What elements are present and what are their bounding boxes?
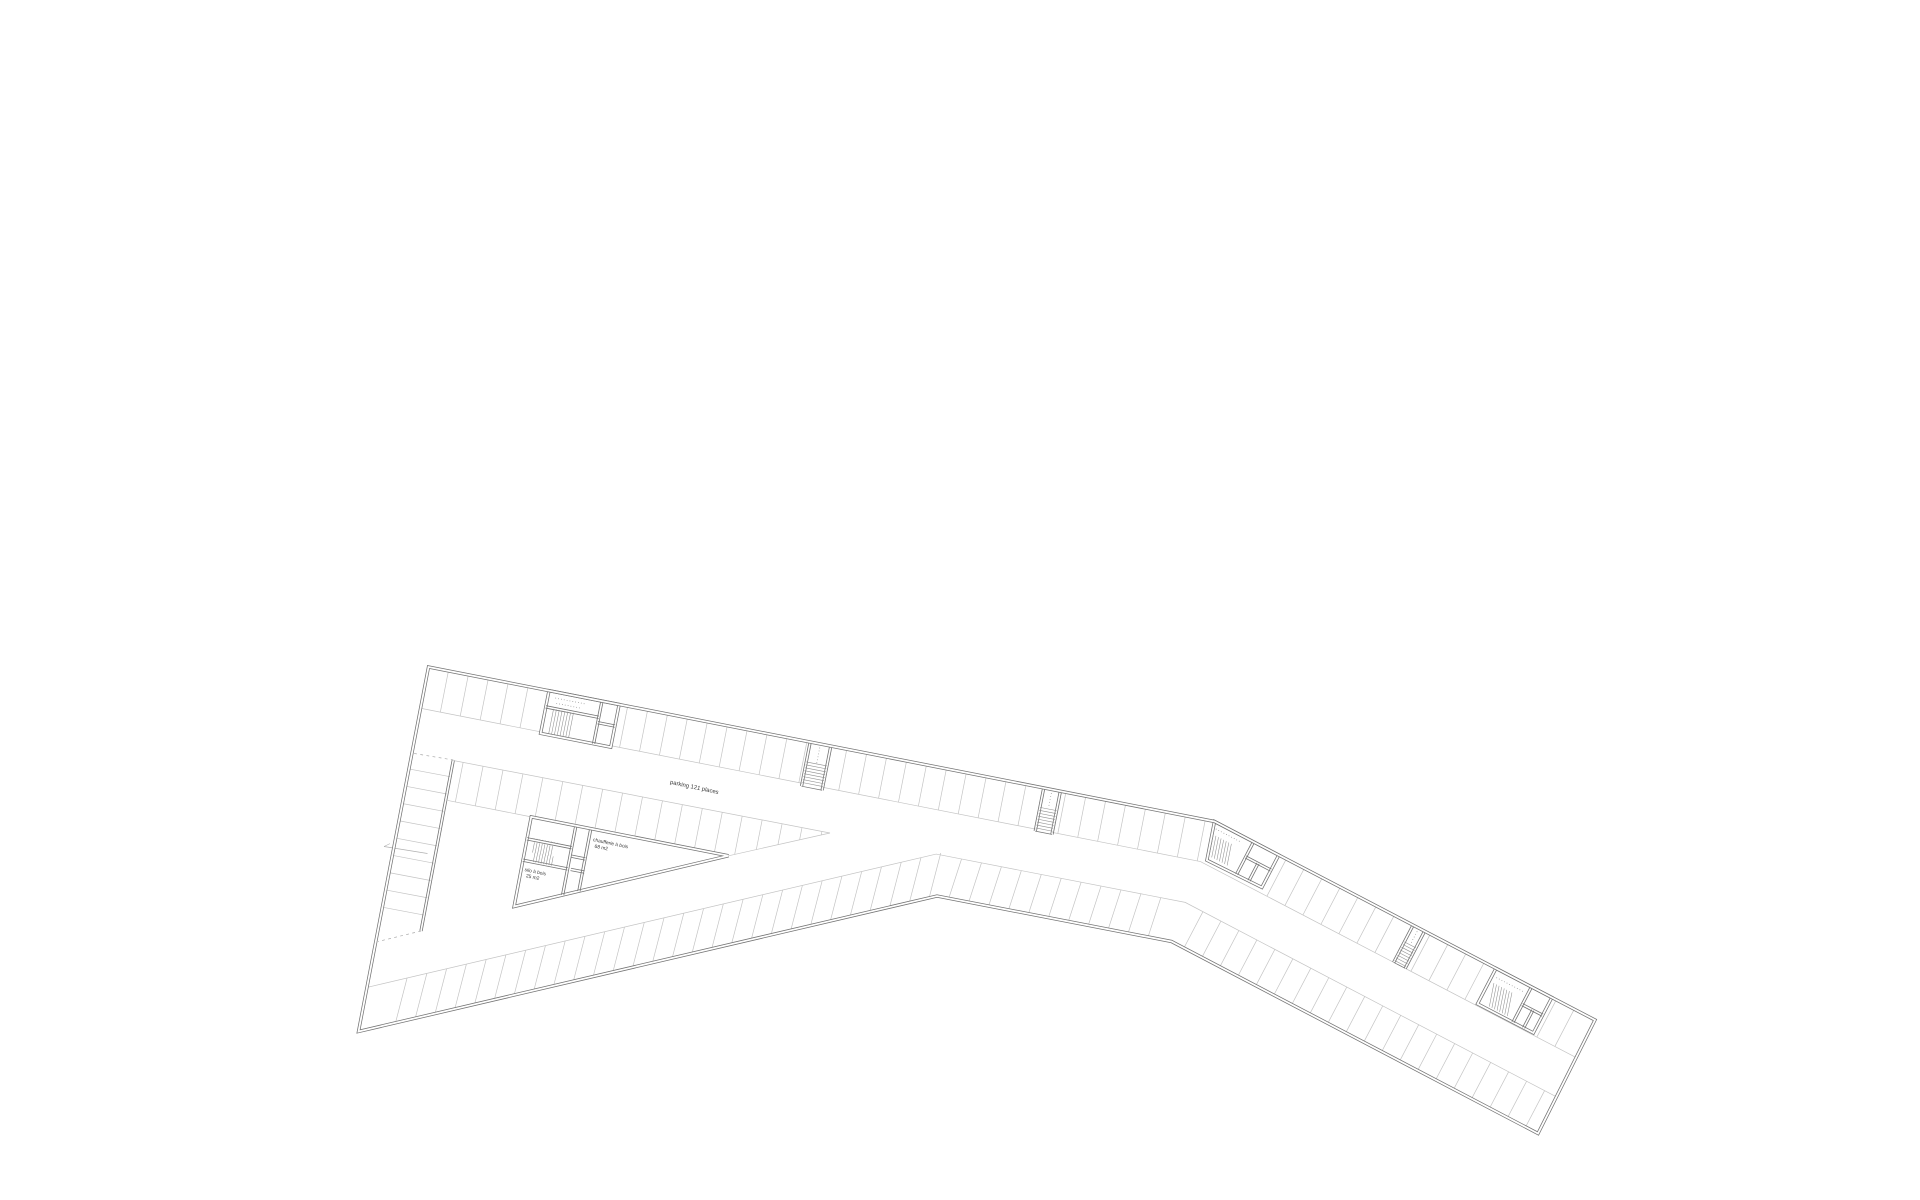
svg-text:parking 121 places: parking 121 places <box>669 780 719 796</box>
